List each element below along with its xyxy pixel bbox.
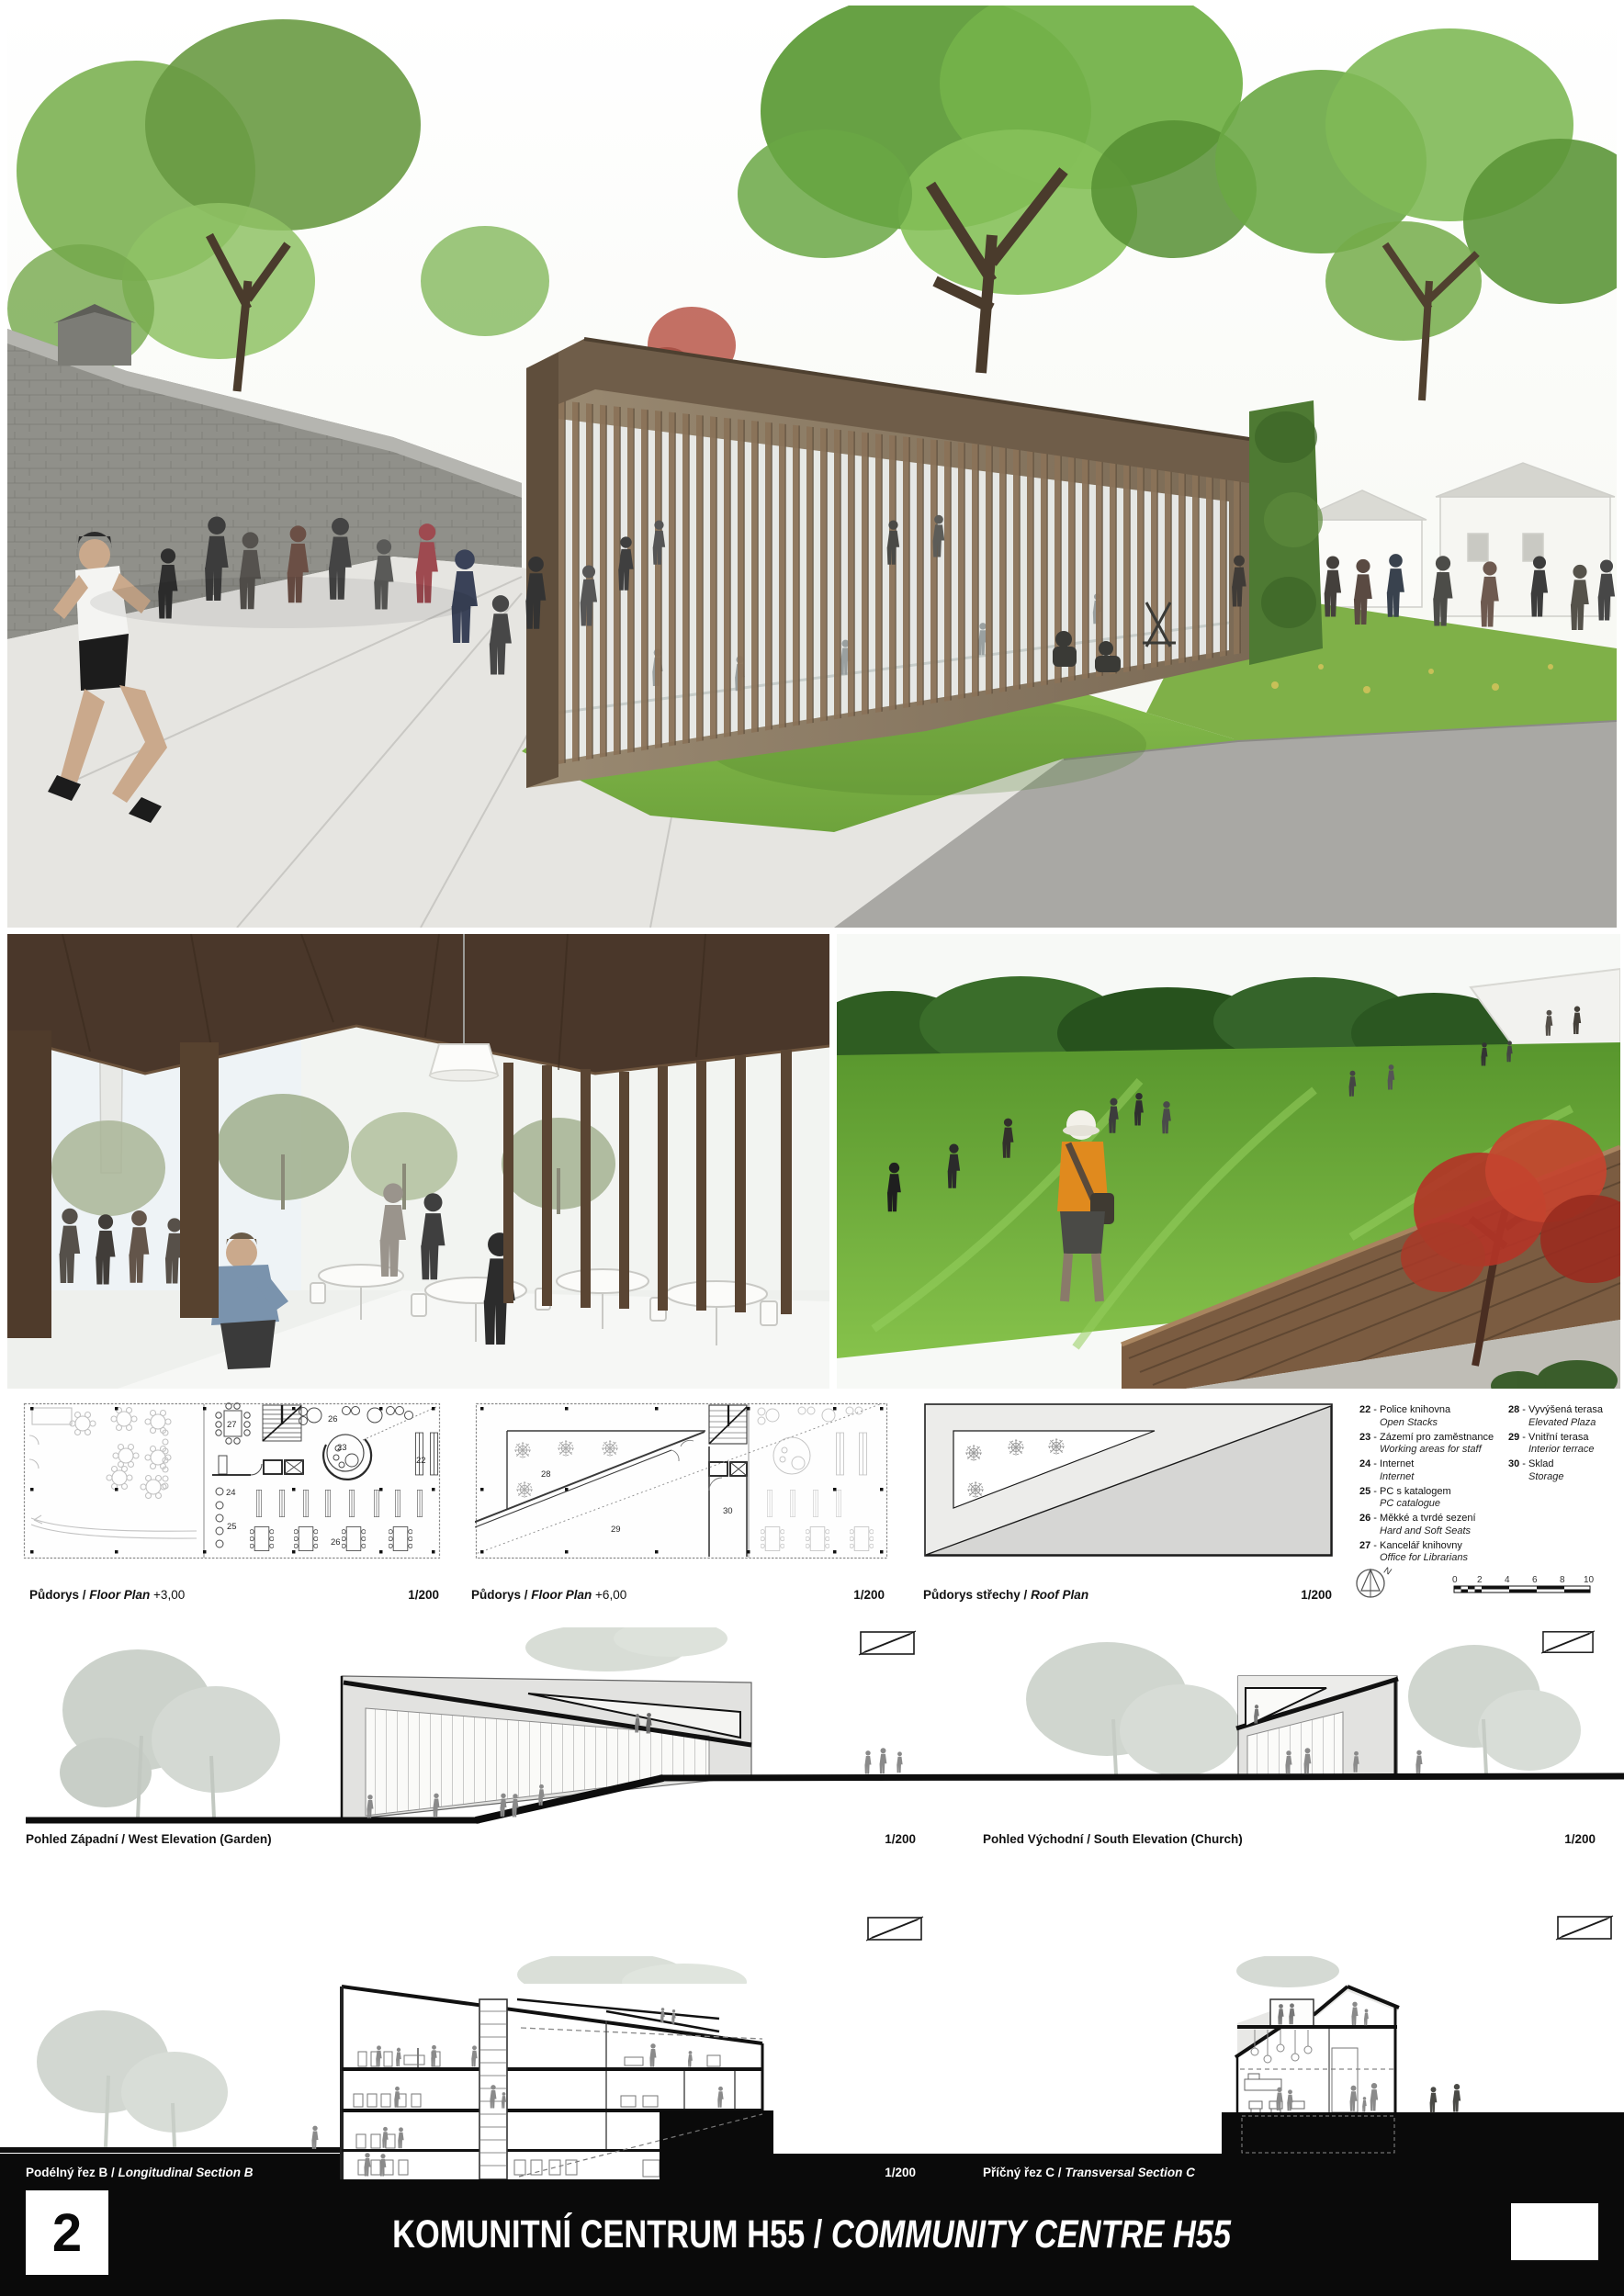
section-cut-marker-c: [1554, 1914, 1615, 1941]
legend-item-27: 27 - Kancelář knihovnyOffice for Librari…: [1359, 1540, 1516, 1565]
section-b-label-sep: /: [107, 2166, 118, 2179]
roof-plan-label: Půdorys střechy / Roof Plan: [923, 1588, 1088, 1602]
transversal-section-scale: 1/200: [1540, 2166, 1596, 2179]
trans-section-gable: [1348, 1986, 1399, 2008]
footer-white-box: [1511, 2203, 1598, 2260]
elevation-ground-lines: [26, 1776, 1624, 1820]
plan3-label-cs: Půdorys střechy: [923, 1588, 1021, 1602]
plan3-label-sep: /: [1021, 1588, 1031, 1602]
trans-section-glass-box: [1270, 1999, 1314, 2027]
section-b-label-en: Longitudinal Section B: [118, 2166, 254, 2179]
footer-band: Podélný řez B / Longitudinal Section B 1…: [0, 2154, 1624, 2296]
section-left-trees: [37, 2010, 228, 2147]
elevations-drawing: [0, 1627, 1624, 1831]
plan2-scale: 1/200: [829, 1588, 885, 1602]
long-section-partitions: [418, 2020, 735, 2149]
svg-text:30: 30: [723, 1506, 733, 1516]
longitudinal-section-scale: 1/200: [861, 2166, 916, 2179]
legend-column-1: 22 - Police knihovnaOpen Stacks 23 - Záz…: [1359, 1404, 1516, 1567]
scale-bar-blocks: [1454, 1586, 1590, 1593]
legend-item-22: 22 - Police knihovnaOpen Stacks: [1359, 1404, 1516, 1429]
plan2-label-cs: Půdorys: [471, 1588, 521, 1602]
south-elev-label-sep: /: [1084, 1832, 1094, 1846]
plan3-scale: 1/200: [1277, 1588, 1332, 1602]
svg-text:28: 28: [541, 1469, 551, 1480]
long-section-roofline: [342, 1986, 762, 2043]
floor-plan-6-00-drawing: 28 29 30: [475, 1402, 888, 1559]
board-title-en: COMMUNITY CENTRE H55: [831, 2212, 1231, 2257]
long-section-stair-core: [479, 1999, 507, 2179]
floor-plan-3-00-drawing: 27 23 26 22 24 25 26: [23, 1402, 441, 1559]
section-c-label-sep: /: [1054, 2166, 1065, 2179]
plan2-label-sep: /: [521, 1588, 531, 1602]
section-cut-marker-right: [1541, 1631, 1595, 1653]
longitudinal-section: [340, 1984, 773, 2179]
north-arrow-n: N: [1382, 1566, 1393, 1578]
trans-section-people: [1276, 2083, 1378, 2112]
interior-second-pylon: [180, 1042, 219, 1318]
interior-left-pylon: [7, 1030, 51, 1338]
south-elev-label-cs: Pohled Východní: [983, 1832, 1084, 1846]
scale-bar-ticks: 0 2 4 6 8 10: [1452, 1575, 1595, 1585]
trans-section-basement-dashed: [1242, 2116, 1394, 2153]
south-elev-label-en: South Elevation (Church): [1094, 1832, 1243, 1846]
svg-text:24: 24: [226, 1488, 236, 1498]
trans-section-left-roof: [1235, 2015, 1299, 2057]
floor-plan-6-label: Půdorys / Floor Plan +6,00: [471, 1588, 626, 1602]
west-elev-label-en: West Elevation (Garden): [129, 1832, 272, 1846]
west-elev-label-cs: Pohled Západní: [26, 1832, 118, 1846]
legend-item-28: 28 - Vyvýšená terasaElevated Plaza: [1508, 1404, 1624, 1429]
svg-text:10: 10: [1584, 1575, 1595, 1585]
board-title: KOMUNITNÍ CENTRUM H55 / COMMUNITY CENTRE…: [393, 2212, 1232, 2257]
svg-text:25: 25: [227, 1522, 237, 1532]
section-cut-marker-left: [859, 1631, 916, 1655]
plan2-label-level: +6,00: [592, 1588, 626, 1602]
section-cut-marker-b: [862, 1914, 928, 1943]
legend-item-29: 29 - Vnitřní terasaInterior terrace: [1508, 1432, 1624, 1457]
south-elevation-building: [1236, 1676, 1398, 1776]
plan3-label-en: Roof Plan: [1031, 1588, 1088, 1602]
legend-item-24: 24 - InternetInternet: [1359, 1458, 1516, 1483]
trans-section-passersby: [1430, 2084, 1461, 2112]
roof-meadow-illustration: [837, 934, 1620, 1389]
west-elev-label-sep: /: [118, 1832, 129, 1846]
svg-text:23: 23: [337, 1443, 347, 1453]
graphic-scale-bar: 0 2 4 6 8 10: [1452, 1572, 1599, 1600]
section-c-label-en: Transversal Section C: [1065, 2166, 1195, 2179]
interior-terrace-illustration: [7, 934, 829, 1389]
section-backdrop-tree: [517, 1956, 686, 1998]
legend-item-25: 25 - PC s katalogemPC catalogue: [1359, 1486, 1516, 1511]
longitudinal-section-label: Podélný řez B / Longitudinal Section B: [26, 2166, 254, 2179]
svg-text:2: 2: [1477, 1575, 1483, 1585]
svg-text:29: 29: [611, 1525, 621, 1535]
plan1-label-cs: Půdorys: [29, 1588, 79, 1602]
plan1-scale: 1/200: [384, 1588, 439, 1602]
svg-text:0: 0: [1452, 1575, 1458, 1585]
legend-item-30: 30 - SkladStorage: [1508, 1458, 1624, 1483]
hero-render-illustration: [7, 6, 1617, 928]
board-title-wrap: KOMUNITNÍ CENTRUM H55 / COMMUNITY CENTRE…: [0, 2212, 1624, 2257]
south-elevation-scale: 1/200: [1540, 1832, 1596, 1846]
trans-section-terrace-deck: [1237, 2025, 1397, 2029]
west-elevation-label: Pohled Západní / West Elevation (Garden): [26, 1832, 272, 1846]
south-elevation-label: Pohled Východní / South Elevation (Churc…: [983, 1832, 1243, 1846]
svg-text:26: 26: [331, 1537, 341, 1548]
section-c-label-cs: Příčný řez C: [983, 2166, 1054, 2179]
trans-section-furniture: [1245, 2074, 1304, 2112]
hero-render-street-view: [7, 6, 1617, 928]
transversal-section: [1222, 1956, 1624, 2179]
floor-plan-3-label: Půdorys / Floor Plan +3,00: [29, 1588, 185, 1602]
roof-plan-drawing: [923, 1402, 1334, 1559]
render-interior-terrace: [7, 934, 829, 1389]
plan2-label-en: Floor Plan: [531, 1588, 592, 1602]
svg-text:22: 22: [416, 1456, 426, 1466]
legend-item-23: 23 - Zázemí pro zaměstnanceWorking areas…: [1359, 1432, 1516, 1457]
plan1-label-level: +3,00: [150, 1588, 185, 1602]
svg-text:26: 26: [328, 1414, 338, 1424]
svg-text:4: 4: [1505, 1575, 1510, 1585]
svg-text:6: 6: [1532, 1575, 1538, 1585]
board-title-sep: /: [806, 2212, 832, 2257]
west-elevation-building: [342, 1676, 751, 1820]
svg-text:27: 27: [227, 1420, 237, 1430]
plan1-label-en: Floor Plan: [89, 1588, 150, 1602]
west-elevation-scale: 1/200: [861, 1832, 916, 1846]
sections-drawing: [0, 1956, 1624, 2179]
board-title-cs: KOMUNITNÍ CENTRUM H55: [393, 2212, 806, 2257]
legend-item-26: 26 - Měkké a tvrdé sezeníHard and Soft S…: [1359, 1513, 1516, 1537]
plan1-label-sep: /: [79, 1588, 89, 1602]
section-b-label-cs: Podélný řez B: [26, 2166, 107, 2179]
legend-column-2: 28 - Vyvýšená terasaElevated Plaza 29 - …: [1508, 1404, 1624, 1486]
transversal-section-label: Příčný řez C / Transversal Section C: [983, 2166, 1195, 2179]
trans-section-lamps: [1251, 2030, 1312, 2063]
render-roof-meadow: [837, 934, 1620, 1389]
svg-text:8: 8: [1560, 1575, 1565, 1585]
